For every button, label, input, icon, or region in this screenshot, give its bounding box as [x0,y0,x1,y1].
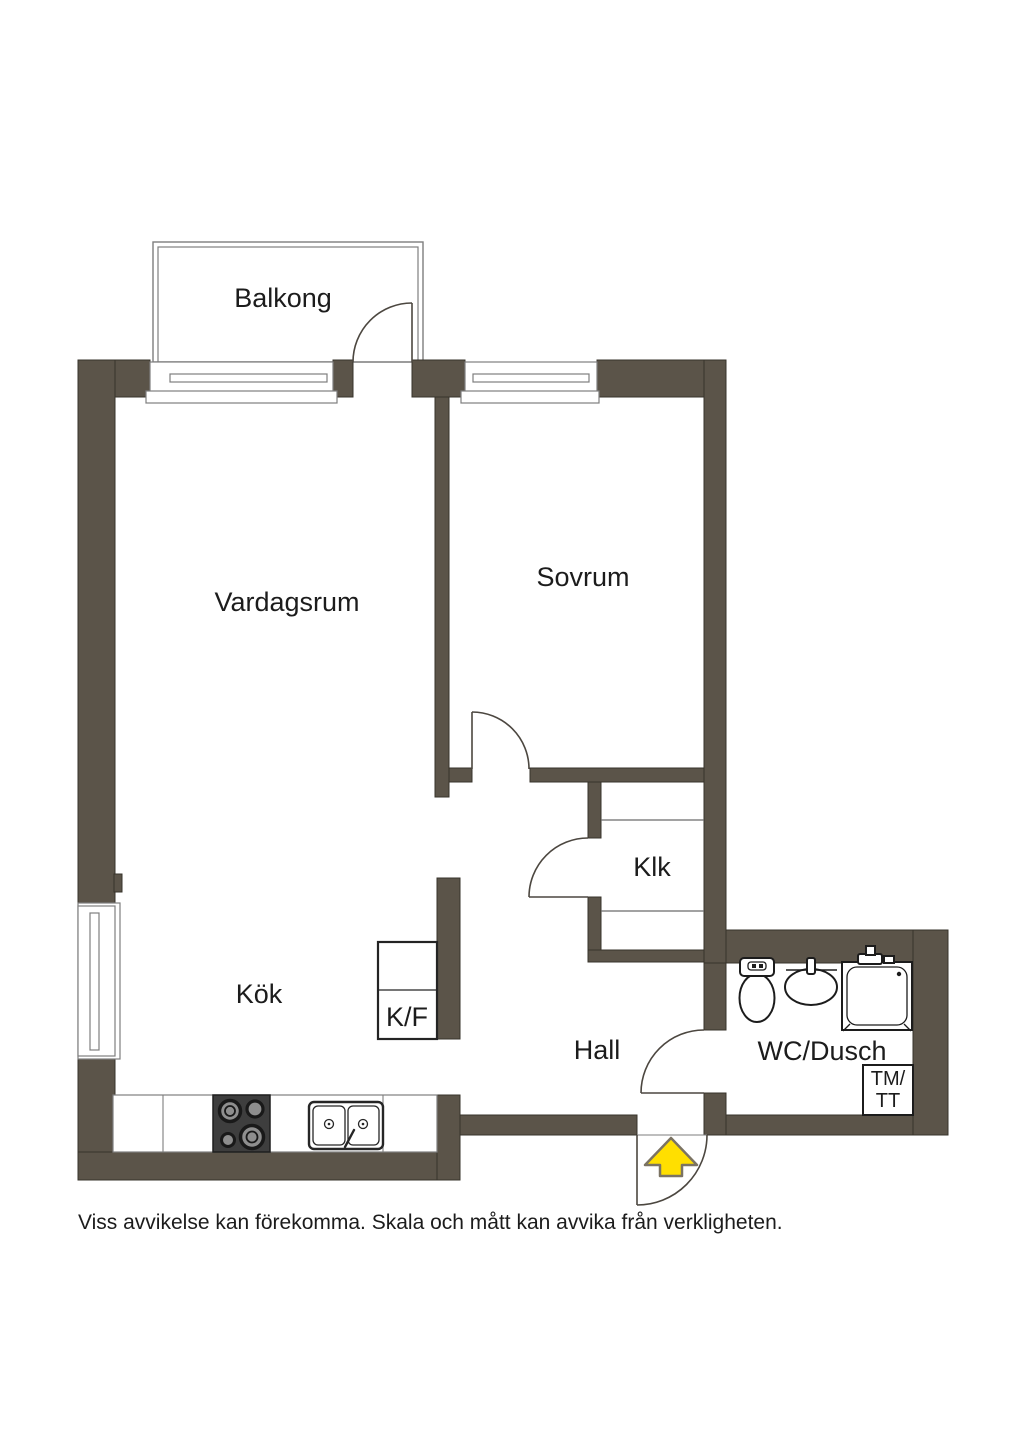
fridge-freezer: K/F [378,942,437,1039]
sink-unit [309,1102,383,1149]
floorplan-page: K/F TM/ TT [0,0,1024,1448]
wall-kitchen-hall-step [437,1095,460,1180]
wall-wc-bottom [704,1115,948,1135]
window-sill [461,391,599,403]
shower-head [884,956,894,963]
label-kitchen: Kök [236,979,283,1009]
closet-door [529,838,588,897]
label-hall: Hall [574,1035,621,1065]
toilet-bowl [740,974,775,1022]
kitchen-fixtures: K/F [113,942,437,1152]
wall-bedroom-bottom-stub [449,768,472,782]
floorplan-drawing: K/F TM/ TT [0,0,1024,1448]
washbasin-icon [785,958,837,1005]
drain-dot [328,1123,331,1126]
bathroom-door [641,1030,704,1093]
drain-dot [362,1123,365,1126]
bedroom-door [472,712,529,769]
window-livingroom-top [146,362,337,403]
window-glass [90,913,99,1050]
windows [78,362,599,1059]
toilet-icon [740,958,775,1022]
toilet-tank [740,958,774,976]
kitchen-sink [309,1102,383,1149]
window-glass [473,374,589,382]
fridge-freezer-label: K/F [386,1002,428,1032]
window-kitchen-left [78,903,120,1059]
wall-closet-left-lower [588,897,601,952]
wall-left-notch [114,874,122,892]
burner-icon [220,1101,241,1122]
window-sill [146,391,337,403]
bathroom-fixtures: TM/ TT [740,946,914,1115]
washer-dryer-label-line2: TT [876,1090,900,1112]
wall-balcony-door-block [412,360,465,397]
wall-wc-left-upper [704,963,726,1030]
label-livingroom: Vardagsrum [214,587,359,617]
wall-closet-left-upper [588,782,601,838]
door-swing-arc [472,712,529,769]
burner-icon [222,1134,235,1147]
wall-wc-left-lower [704,1093,726,1135]
door-swing-arc [529,838,588,897]
kitchen-counter [113,1095,437,1152]
wall-hall-bottom [460,1115,637,1135]
washer-dryer: TM/ TT [863,1065,913,1115]
burner-icon [247,1101,263,1117]
basin-faucet [807,958,815,974]
door-swing-arc [641,1030,704,1093]
window-glass [170,374,327,382]
burner-icon [241,1126,264,1149]
shower-handle [866,946,875,955]
doors [353,303,707,1205]
wall-kitchen-hall [437,878,460,1039]
shower-tray [842,962,912,1030]
washer-dryer-label-line1: TM/ [871,1068,906,1090]
label-bathroom: WC/Dusch [757,1036,886,1066]
label-balcony: Balkong [234,283,332,313]
wall-kitchen-bottom [78,1152,460,1180]
window-bedroom-top [461,362,599,403]
wall-closet-bottom [588,950,704,962]
shower-drain-dot [897,972,901,976]
disclaimer-text: Viss avvikelse kan förekomma. Skala och … [78,1211,783,1234]
wall-bedroom-bottom [530,768,704,782]
wall-wc-right [913,930,948,1135]
wall-left-upper [78,360,115,906]
wall-livingroom-bedroom [435,397,449,797]
label-closet: Klk [633,852,671,882]
entrance-arrow-icon [645,1138,697,1176]
toilet-button [752,964,756,968]
toilet-button [759,964,763,968]
label-bedroom: Sovrum [536,562,629,592]
wall-right [704,360,726,963]
